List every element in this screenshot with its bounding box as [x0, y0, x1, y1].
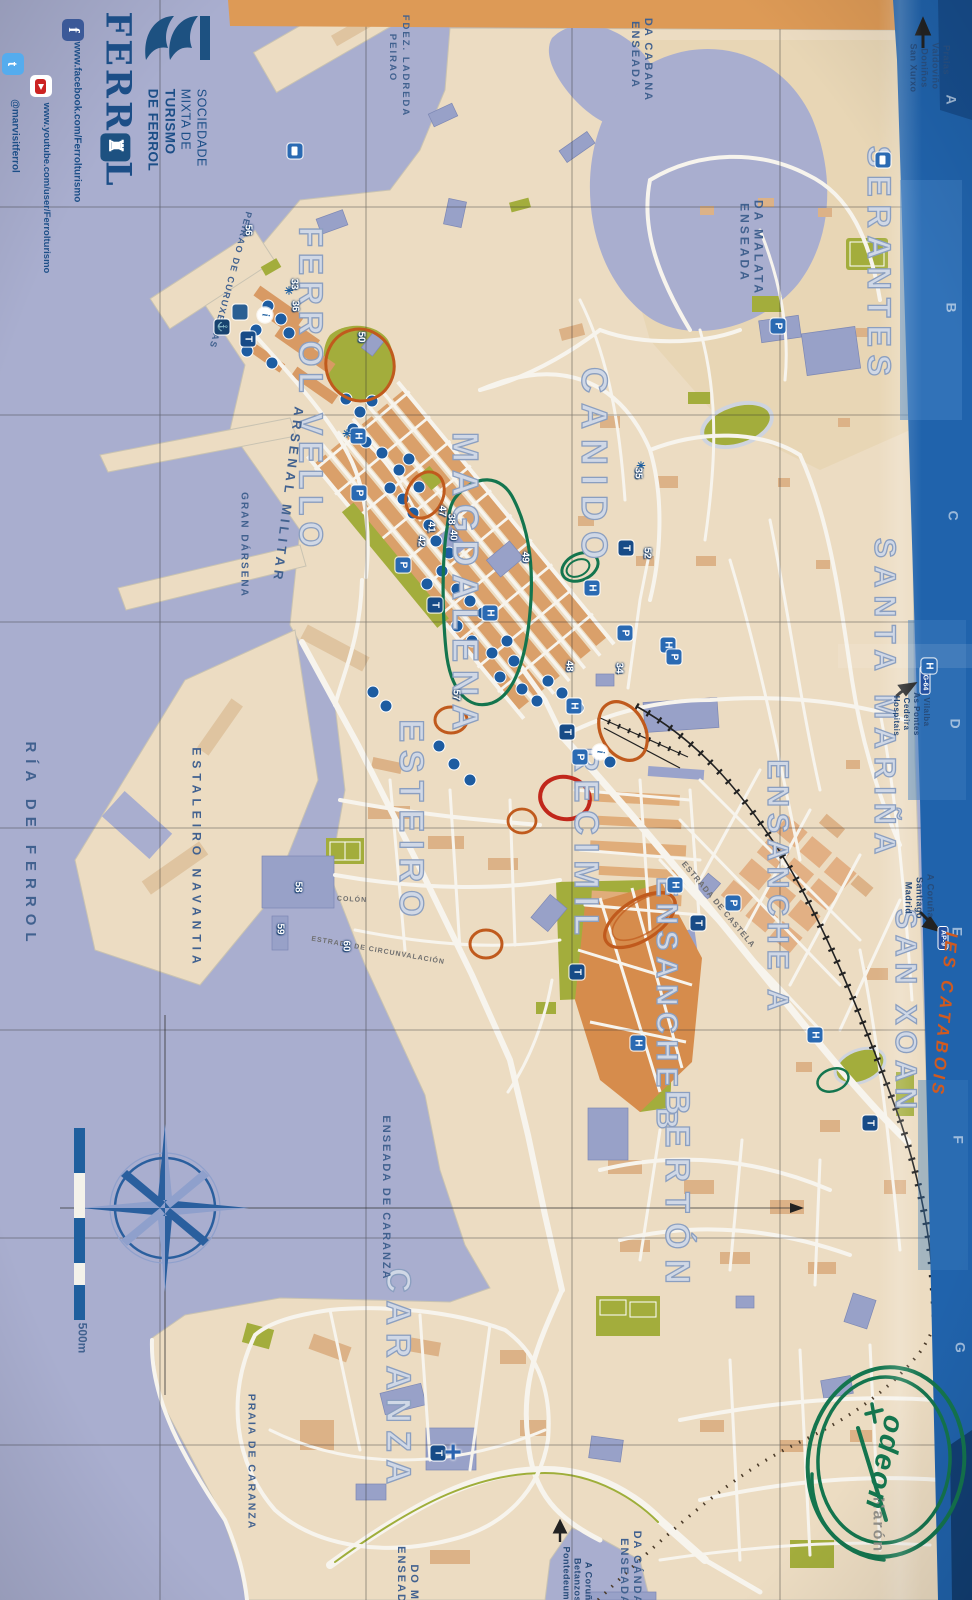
dir-madrid-3: A Coruña — [925, 874, 934, 918]
taxi-icon: T — [691, 916, 706, 931]
poi-number: 36 — [289, 300, 300, 311]
district-caranza: CARANZA — [379, 1268, 415, 1492]
taxi-icon: T — [428, 598, 443, 613]
taxi-icon: T — [560, 725, 575, 740]
museum-icon — [233, 305, 248, 320]
district-esteiro: ESTEIRO — [392, 719, 428, 924]
scale-label: 500m — [76, 1323, 89, 1354]
poi-number: 47 — [436, 505, 447, 516]
dir-hospitais-3: As Pontes — [912, 692, 920, 736]
brand-mark-icon — [144, 0, 216, 80]
dir-praias-1: San Xurxo — [908, 43, 917, 92]
poi-number: 52 — [641, 547, 652, 558]
hotel-icon: H — [567, 699, 582, 714]
hotel-icon: H — [808, 1028, 823, 1043]
parking-icon: P — [771, 319, 786, 334]
poi-number: 58 — [292, 881, 303, 892]
dir-hospitais-1: Hospitais — [892, 696, 900, 737]
poi-number: 33 — [288, 278, 299, 289]
map-photo: FERR♜L SOCIEDADEMIXTA DE TURISMODE FERRO… — [0, 0, 972, 1600]
port-peirao-ladreda-1: PEIRAO — [387, 34, 397, 82]
grid-letter: D — [948, 718, 963, 729]
port-estaleiro-navantia: ESTALEIRO NAVANTIA — [190, 747, 203, 968]
district-san-xoan: SAN XOAN — [889, 909, 921, 1115]
anchor-icon: ⚓ — [215, 320, 230, 335]
dir-madrid-2: Santiago — [914, 877, 923, 919]
poi-number: 59 — [274, 923, 285, 934]
grid-letter: B — [944, 302, 959, 313]
poi-number: 56 — [242, 224, 253, 235]
poi-number: 42 — [415, 535, 426, 546]
water-malata-2: DA MALATA — [752, 200, 765, 296]
youtube-icon — [30, 75, 52, 97]
bus-icon — [288, 144, 303, 159]
dir-praias-3: Valdoviño — [930, 42, 939, 89]
facebook-icon: f — [62, 19, 84, 41]
water-gran-darsena: GRAN DÁRSENA — [238, 492, 249, 598]
hotel-icon: H — [585, 581, 600, 596]
hotel-icon: H — [351, 429, 366, 444]
taxi-icon: T — [241, 332, 256, 347]
poi-number: 35 — [632, 467, 643, 478]
district-serantes: SERANTES — [861, 146, 895, 384]
district-canido: CANIDO — [575, 367, 613, 569]
district-ferrol-vello: FERROL VELLO — [293, 227, 328, 553]
district-ensanche-a: ENSANCHE A — [761, 759, 793, 1016]
dir-praias-4: Praias — [941, 45, 950, 75]
grid-letter: G — [953, 1342, 968, 1354]
poi-number: 60 — [340, 940, 351, 951]
ferrol-tourist-map — [0, 0, 972, 1600]
taxi-icon: T — [619, 541, 634, 556]
water-cabana-2: DA CABANA — [641, 18, 653, 102]
taxi-icon: T — [570, 965, 585, 980]
hotel-icon: H — [631, 1036, 646, 1051]
water-malata-1: ENSEADA — [738, 203, 751, 283]
poi-number: 34 — [613, 662, 624, 673]
info-icon: i — [593, 745, 608, 760]
ferrol-crest-icon: ♜ — [101, 133, 131, 161]
taxi-icon: T — [863, 1116, 878, 1131]
dir-pontedeume-2: Betanzos — [572, 1558, 581, 1600]
water-ria-de-ferrol: RÍA DE FERROL — [22, 741, 38, 948]
facebook-url: www.facebook.com/Ferrolturismo — [71, 42, 82, 203]
bus-icon — [876, 153, 891, 168]
water-cabana-1: ENSEADA — [628, 21, 640, 89]
poi-number: 49 — [519, 551, 530, 562]
parking-icon: P — [396, 558, 411, 573]
vignette — [0, 0, 972, 1600]
water-praia-caranza: PRAIA DE CARANZA — [245, 1394, 256, 1531]
parking-icon: P — [352, 486, 367, 501]
grid-letter: C — [946, 510, 961, 521]
water-gandara-1: ENSEADA — [617, 1538, 629, 1600]
grid-letter: F — [951, 1135, 966, 1145]
poi-number: 41 — [425, 521, 436, 532]
poi-number: 48 — [563, 660, 574, 671]
org-name: SOCIEDADEMIXTA DE TURISMODE FERROL — [144, 89, 209, 172]
hospital-cross-icon: + — [435, 1443, 469, 1461]
dir-pontedeume-3: A Coruña — [583, 1562, 592, 1600]
parking-icon: P — [618, 626, 633, 641]
poi-number: 57 — [450, 689, 461, 700]
port-peirao-ladreda-2: FDEZ. LADREDA — [400, 15, 410, 118]
water-enseada-caranza: ENSEADA DE CARANZA — [379, 1115, 391, 1280]
poi-number: 50 — [355, 331, 366, 342]
hotel-icon: H — [922, 659, 937, 674]
info-icon: i — [258, 308, 273, 323]
parking-icon: P — [667, 650, 682, 665]
district-recimil: RECIMIL — [567, 747, 603, 943]
dir-hospitais-4: Vilalba — [922, 697, 930, 726]
water-gandara-2: DA GÁNDARA — [630, 1531, 642, 1600]
poi-number: 40 — [447, 529, 458, 540]
dir-madrid-1: Madrid — [903, 882, 912, 915]
street-colon: COLÓN — [337, 896, 368, 905]
dir-praias-2: Doniños — [919, 48, 928, 88]
hotel-icon: H — [668, 878, 683, 893]
viewpoint-icon: ✳ — [342, 428, 351, 441]
dir-hospitais-2: Cedeira — [902, 698, 910, 731]
twitter-handle: @marvisitferrol — [9, 99, 20, 173]
parking-icon: P — [726, 896, 741, 911]
logo-ferrol-title: FERR♜L — [99, 11, 136, 188]
youtube-url: www.youtube.com/user/Ferrolturismo — [41, 103, 51, 274]
twitter-icon: t — [2, 53, 24, 75]
parking-icon: P — [573, 750, 588, 765]
grid-letter: A — [944, 94, 959, 105]
district-berton: BERTÓN — [658, 1090, 694, 1294]
hotel-icon: H — [483, 606, 498, 621]
dir-pontedeume-1: Pontedeume — [561, 1546, 570, 1600]
water-monton-1: ENSEADA — [394, 1546, 406, 1600]
water-monton-2: DO MO — [407, 1564, 419, 1600]
